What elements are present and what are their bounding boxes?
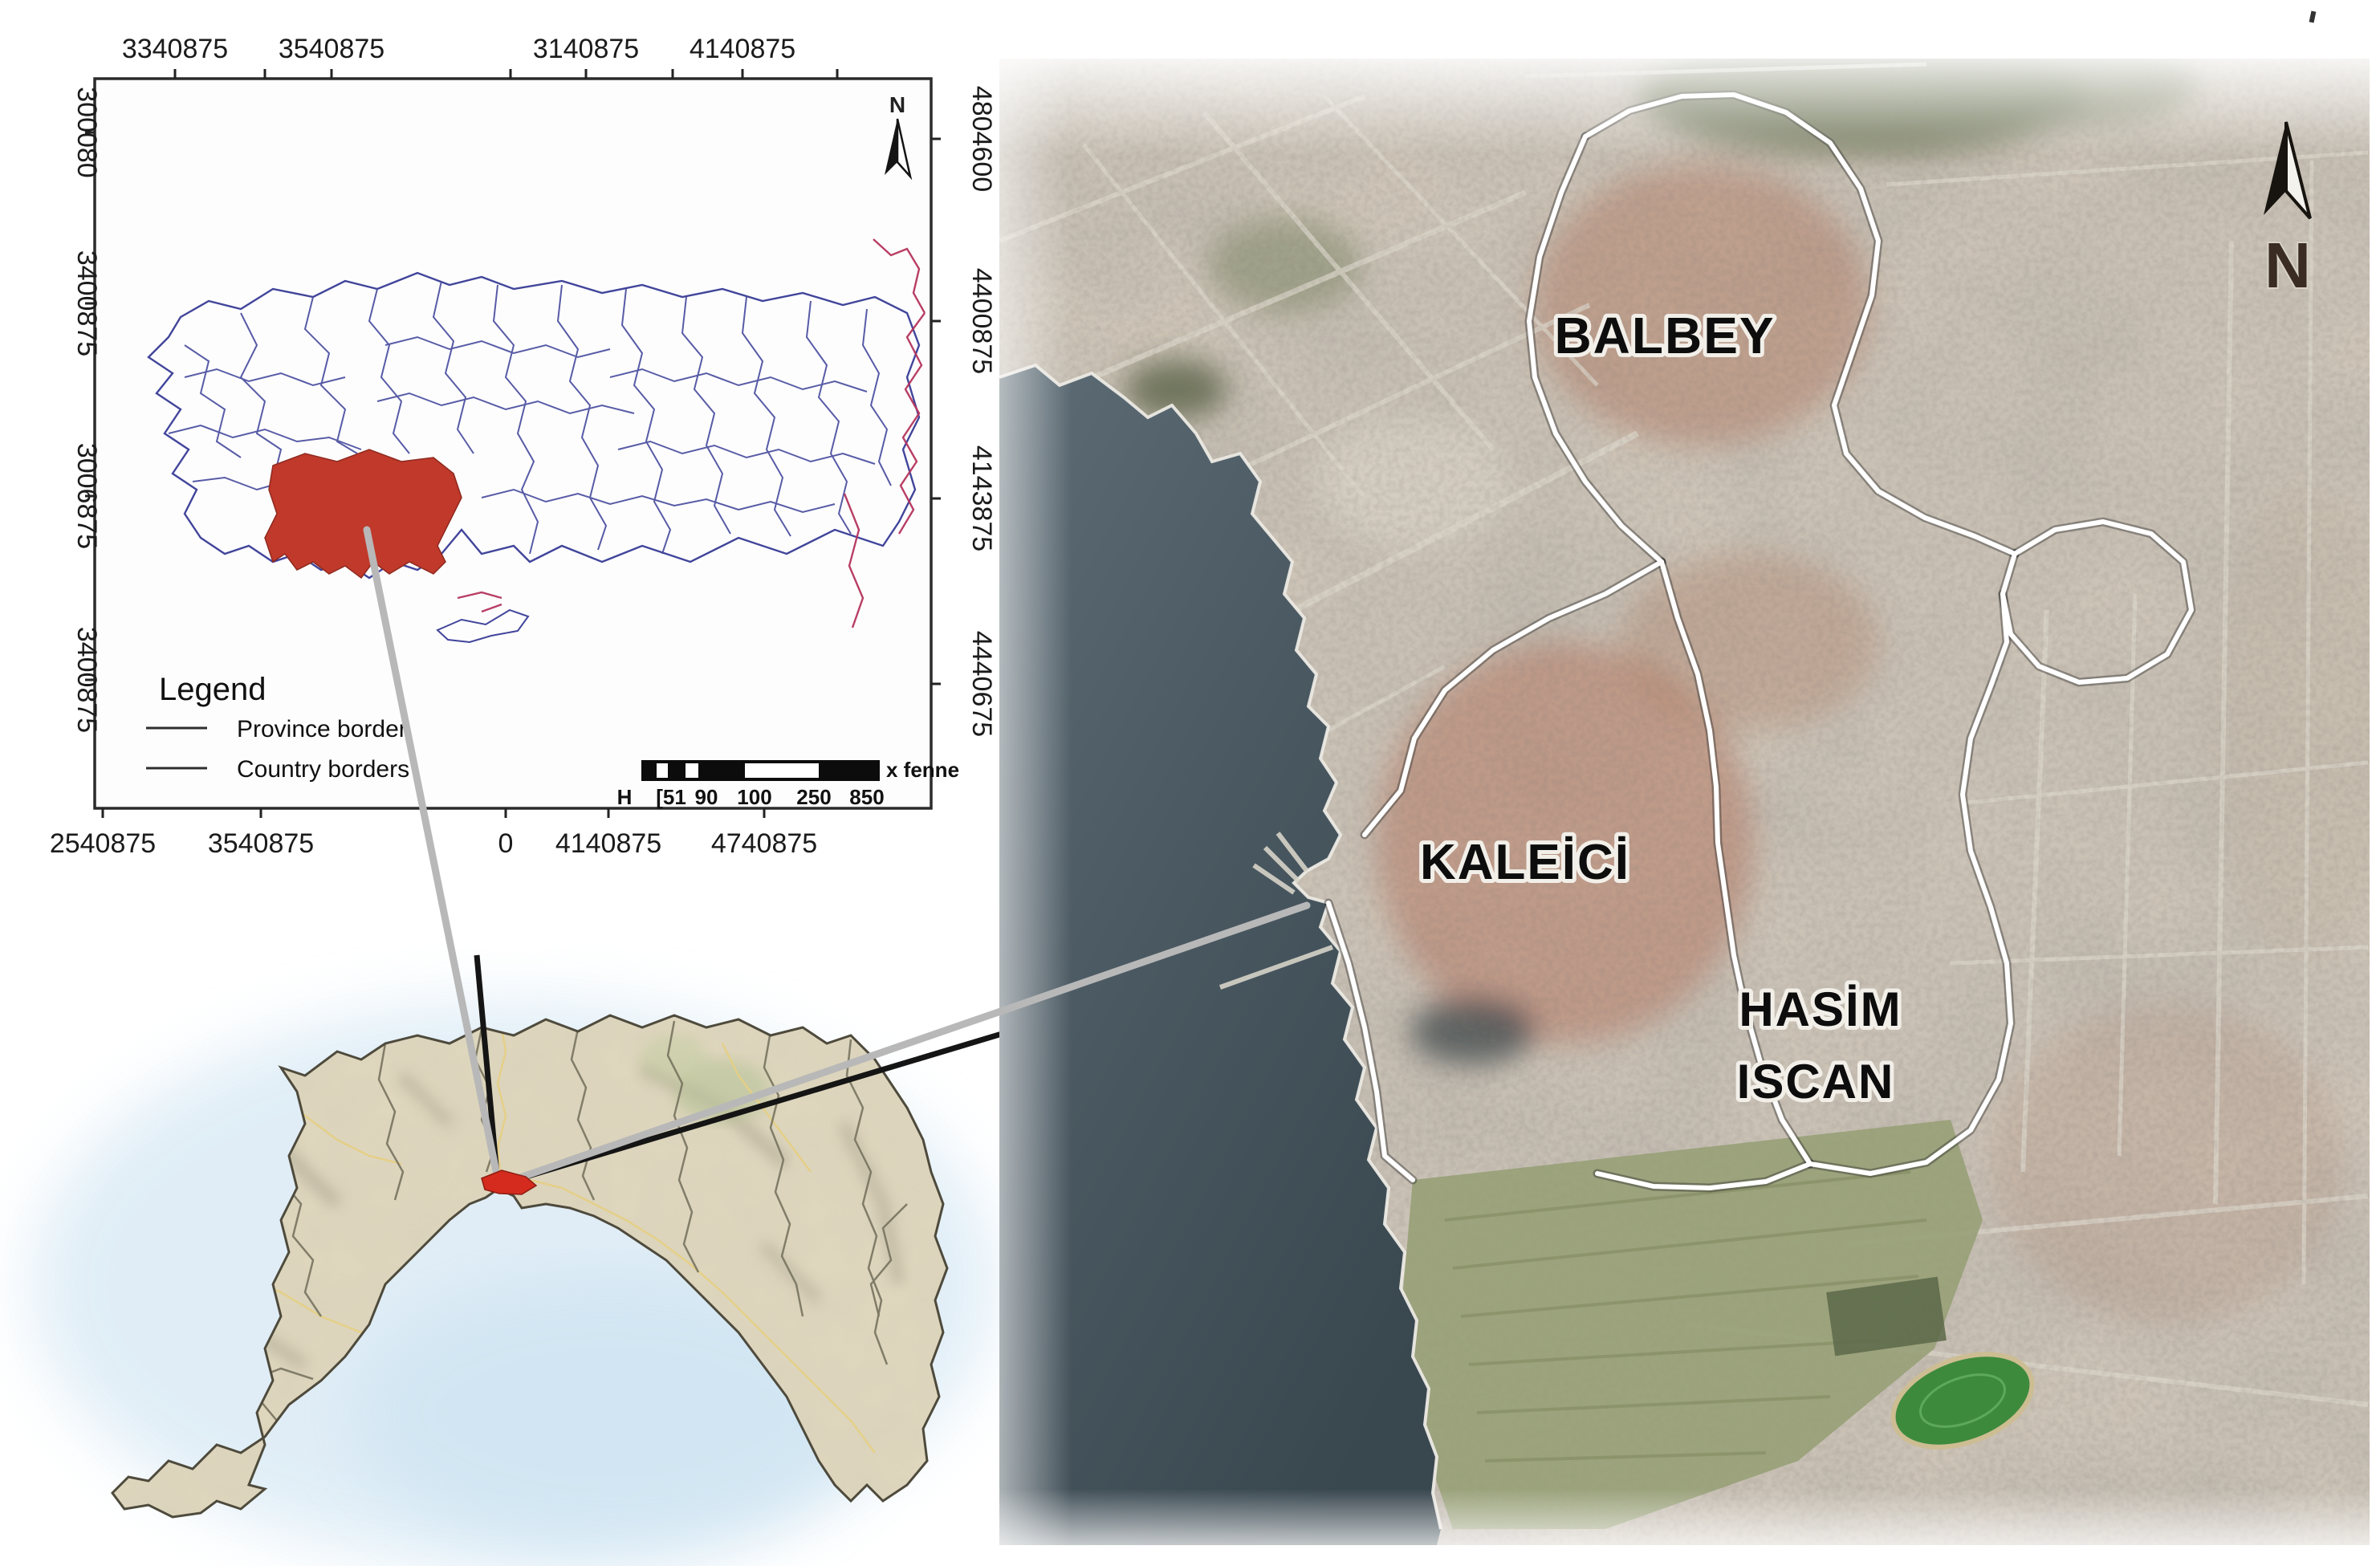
axis-label-left-0: 300080 (71, 87, 102, 177)
axis-label-right-3: 4440675 (966, 631, 997, 737)
highlighted-province-antalya (265, 449, 462, 578)
axis-label-top-0: 3340875 (122, 34, 228, 64)
scale-tick-1: [51 (656, 785, 686, 809)
scale-tick-4: 250 (796, 785, 831, 809)
axis-label-right-2: 4143875 (966, 445, 997, 551)
turkey-north-label: N (889, 92, 905, 117)
scale-tick-0: H (617, 785, 633, 809)
axis-label-bottom-3: 4140875 (555, 828, 661, 859)
axis-label-bottom-4: 4740875 (711, 828, 817, 859)
legend-item-country-borders: Country borders (237, 756, 409, 783)
axis-label-top-2: 3140875 (533, 34, 639, 64)
satellite-north-label: N (2264, 230, 2311, 301)
label-kaleici: KALEİCİ (1420, 835, 1630, 890)
vegetation-patch (641, 1035, 708, 1084)
scale-tick-2: 90 (695, 785, 718, 809)
haze-bottom (999, 1489, 2370, 1545)
haze-left (999, 59, 1072, 1545)
axis-label-left-1: 3400875 (71, 250, 102, 356)
legend-title: Legend (159, 672, 266, 707)
scale-unit-label: x fenne (886, 758, 959, 782)
axis-label-bottom-1: 3540875 (208, 828, 314, 859)
label-hasim-line2: ISCAN (1737, 1055, 1895, 1108)
label-balbey: BALBEY (1554, 307, 1775, 364)
turkey-inset-map: N Legend Province border Country borders… (50, 34, 997, 859)
satellite-aerial-map: BALBEY KALEİCİ HASİM ISCAN N (999, 32, 2380, 1545)
figure-canvas: N Legend Province border Country borders… (0, 0, 2380, 1566)
haze-top (999, 59, 2370, 155)
label-hasim-line1: HASİM (1739, 982, 1902, 1036)
axis-label-top-1: 3540875 (279, 34, 384, 64)
scale-tick-5: 850 (849, 785, 884, 809)
axis-label-right-0: 4804600 (966, 86, 997, 192)
axis-label-bottom-2: 0 (498, 828, 514, 859)
scale-tick-3: 100 (737, 785, 771, 809)
axis-label-left-3: 3400875 (71, 627, 102, 733)
axis-label-bottom-0: 2540875 (50, 828, 156, 859)
legend-item-province-border: Province border (237, 716, 407, 742)
axis-label-left-2: 3006875 (71, 443, 102, 549)
axis-label-top-3: 4140875 (690, 34, 795, 64)
axis-label-right-1: 4400875 (966, 268, 997, 374)
